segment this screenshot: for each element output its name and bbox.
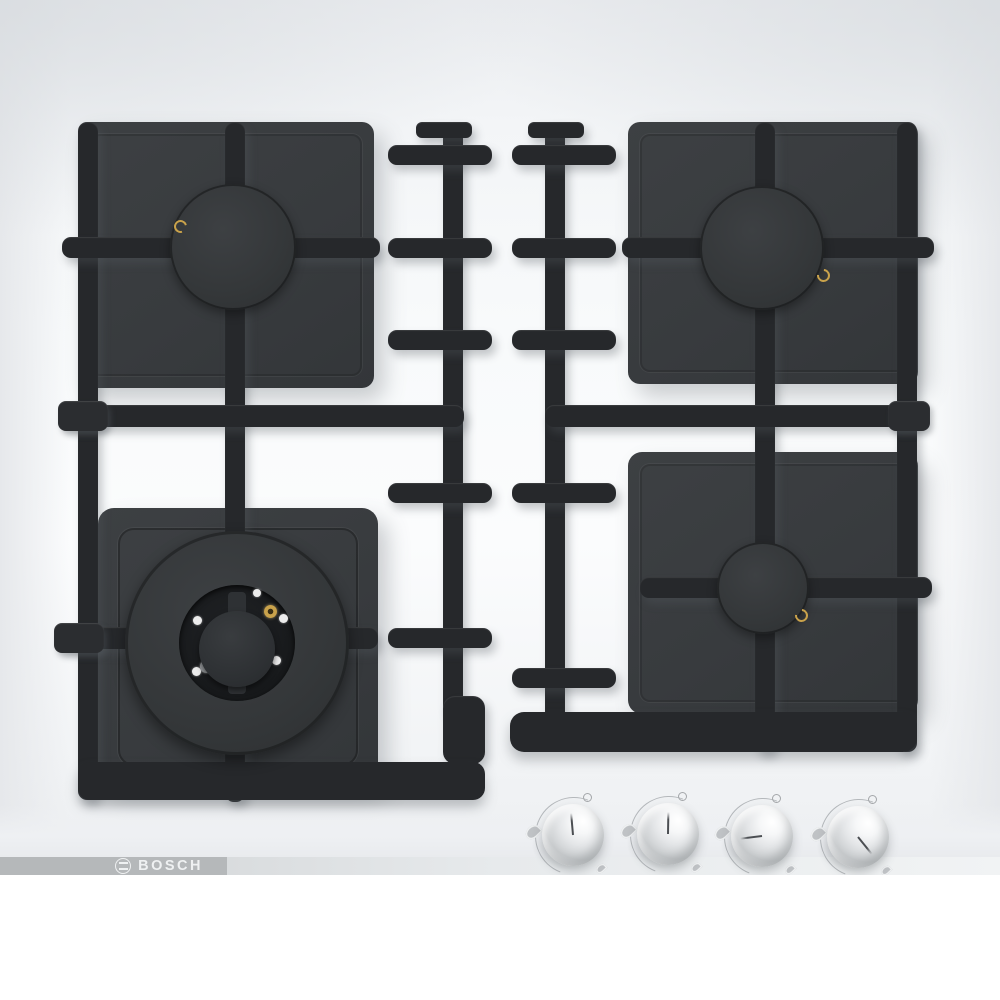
pan-support-rung bbox=[512, 238, 616, 258]
knob-indicator bbox=[857, 836, 872, 854]
pan-support-rung bbox=[388, 483, 492, 503]
wok-ignition-electrode bbox=[264, 605, 277, 618]
knob-indicator bbox=[570, 813, 574, 835]
pan-support-joint-sleeve bbox=[54, 623, 104, 653]
pan-support-rung bbox=[388, 330, 492, 350]
pan-support-joint-sleeve bbox=[888, 401, 930, 431]
knob-indicator bbox=[667, 812, 669, 834]
pan-support-rung bbox=[512, 330, 616, 350]
bosch-logo-text: BOSCH bbox=[138, 859, 203, 874]
control-knob-4 bbox=[827, 806, 889, 868]
pan-support-rung bbox=[512, 483, 616, 503]
photo-bottom-margin bbox=[0, 875, 1000, 1000]
pan-support-rung bbox=[388, 628, 492, 648]
pan-support-right-outer-rail bbox=[897, 122, 917, 752]
control-knob-3 bbox=[731, 805, 793, 867]
pan-support-rung bbox=[416, 122, 472, 138]
pan-support-rung bbox=[512, 145, 616, 165]
pan-support-left-step-joint bbox=[443, 696, 485, 764]
product-photo-gas-hob: BOSCH bbox=[0, 0, 1000, 1000]
control-knob-2 bbox=[637, 803, 699, 865]
wok-screw bbox=[193, 616, 202, 625]
pan-support-left-outer-rail bbox=[78, 122, 98, 800]
bosch-logo: BOSCH bbox=[0, 857, 227, 875]
burner-top-left bbox=[170, 184, 296, 310]
pan-support-rung bbox=[388, 145, 492, 165]
pan-support-right-center-horizontal bbox=[545, 405, 919, 427]
control-knob-1 bbox=[542, 804, 604, 866]
pan-support-right-bottom-rail bbox=[510, 712, 917, 752]
bosch-armature-icon bbox=[115, 858, 131, 874]
knob-indicator bbox=[740, 835, 762, 840]
knob-off-marker bbox=[678, 792, 687, 801]
pan-support-rung bbox=[528, 122, 584, 138]
knob-off-marker bbox=[772, 794, 781, 803]
hob-glass-surface: BOSCH bbox=[0, 0, 1000, 875]
pan-support-left-center-horizontal bbox=[62, 405, 464, 427]
pan-support-rung bbox=[512, 668, 616, 688]
wok-burner-cap bbox=[199, 611, 275, 687]
pan-support-left-bottom-rail bbox=[78, 762, 485, 800]
burner-top-right bbox=[700, 186, 824, 310]
knob-off-marker bbox=[583, 793, 592, 802]
pan-support-joint-sleeve bbox=[58, 401, 108, 431]
pan-support-rung bbox=[388, 238, 492, 258]
burner-bottom-right bbox=[717, 542, 809, 634]
wok-screw bbox=[253, 589, 261, 597]
wok-screw bbox=[279, 614, 288, 623]
knob-off-marker bbox=[868, 795, 877, 804]
